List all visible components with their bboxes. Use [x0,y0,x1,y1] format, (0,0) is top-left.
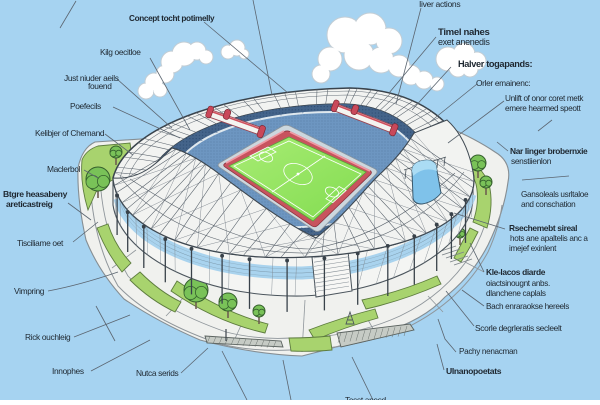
svg-text:senstiienlon: senstiienlon [511,156,552,166]
svg-text:Bach enraraokse hereels: Bach enraraokse hereels [486,302,569,311]
svg-text:Kilg oecitloe: Kilg oecitloe [100,47,141,57]
svg-text:Nutca serids: Nutca serids [136,368,179,378]
svg-text:Vimpring: Vimpring [14,286,45,296]
svg-text:Poefecils: Poefecils [70,101,101,111]
svg-text:Gansoleals usrltaloe: Gansoleals usrltaloe [521,190,589,199]
svg-text:Innophes: Innophes [52,366,84,376]
svg-text:Scorle degrleratis secleelt: Scorle degrleratis secleelt [475,323,562,333]
svg-text:and conschation: and conschation [521,200,576,209]
svg-text:Tesst anesd: Tesst anesd [345,395,387,400]
svg-text:Iiver actions: Iiver actions [419,0,460,9]
svg-text:Maclerbol: Maclerbol [47,164,81,174]
svg-text:Nar linger brobernxie: Nar linger brobernxie [510,146,588,156]
svg-text:Btgre heasabeny: Btgre heasabeny [3,189,68,199]
svg-text:Rick ouchleig: Rick ouchleig [25,332,71,342]
svg-text:areticastreig: areticastreig [6,199,53,209]
svg-text:Kle-lacos diarde: Kle-lacos diarde [486,267,546,277]
svg-text:oiactsinougnt anbs.: oiactsinougnt anbs. [486,279,550,288]
svg-text:dlanchene caplals: dlanchene caplals [486,289,546,298]
svg-text:Tisciliame oet: Tisciliame oet [17,238,64,248]
svg-text:Kelibjer of Chemand: Kelibjer of Chemand [35,128,105,138]
svg-text:Unlift of onor coret metk: Unlift of onor coret metk [505,94,584,103]
svg-text:exet anenedis: exet anenedis [438,37,490,47]
svg-text:Halver togapands:: Halver togapands: [458,59,532,69]
svg-text:emere hearmed speott: emere hearmed speott [505,104,581,113]
svg-text:Rsechemebt sireal: Rsechemebt sireal [509,223,577,233]
svg-text:Ulnanopoetats: Ulnanopoetats [446,366,502,376]
svg-text:Concept tocht potimelly: Concept tocht potimelly [129,14,215,23]
svg-text:Pachy nenacman: Pachy nenacman [459,347,518,356]
svg-text:Orler emainenc:: Orler emainenc: [476,78,530,88]
svg-text:imejef exinlent: imejef exinlent [509,244,557,253]
svg-text:hots ane apaltelis anc a: hots ane apaltelis anc a [510,234,588,243]
svg-text:fouend: fouend [88,81,112,91]
